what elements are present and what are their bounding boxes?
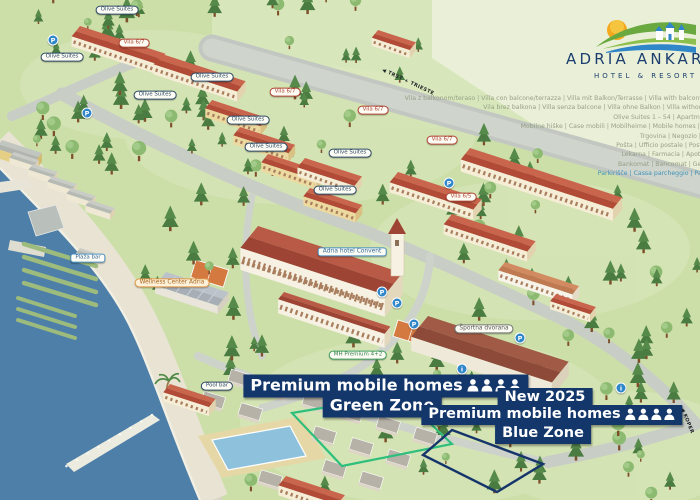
map-illustration bbox=[0, 0, 700, 500]
resort-map: ADRIA ANKARAN HOTEL & RESORT Vila z balk… bbox=[0, 0, 700, 500]
hotel-tower bbox=[391, 232, 404, 276]
